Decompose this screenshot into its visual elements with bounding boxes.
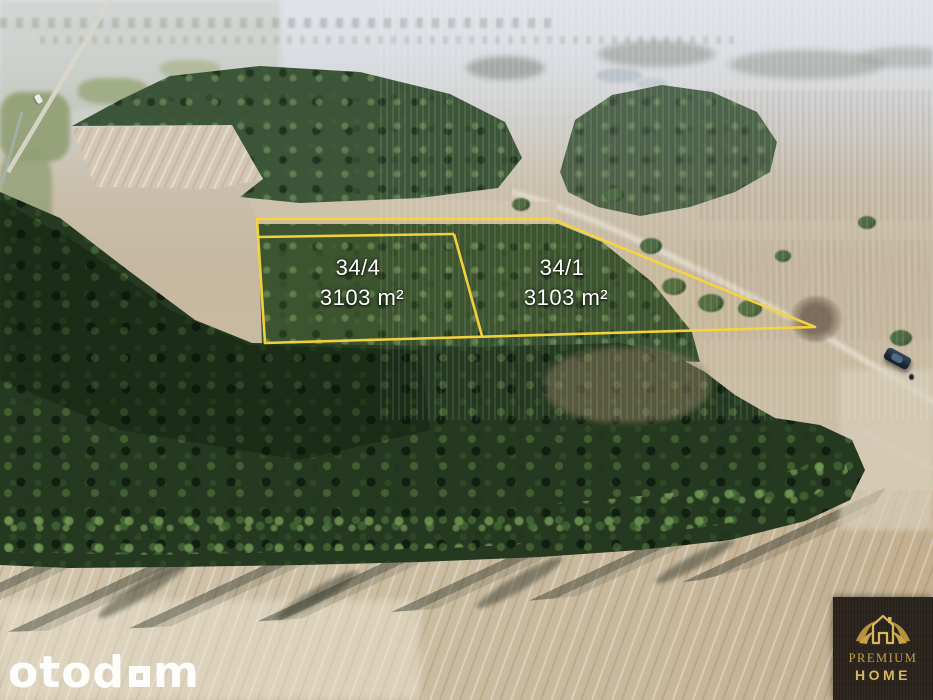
plot-outline-graphic: [0, 0, 933, 700]
plot-boundary-outer: [257, 219, 815, 343]
house-laurel-icon: [854, 613, 912, 647]
logo-home-text: HOME: [855, 666, 911, 684]
watermark-text-suffix: m: [153, 651, 200, 695]
premium-home-logo-card: PREMIUM HOME: [833, 597, 933, 700]
plot-1-area-label: 3103 m²: [320, 285, 404, 311]
logo-premium-text: PREMIUM: [849, 651, 918, 667]
plot-1-id-label: 34/4: [336, 255, 381, 281]
aerial-photo: 34/4 3103 m² 34/1 3103 m² otodm PREMIUM …: [0, 0, 933, 700]
otodom-square-glyph: [129, 666, 150, 687]
plot-2-id-label: 34/1: [540, 255, 585, 281]
plot-2-area-label: 3103 m²: [524, 285, 608, 311]
otodom-watermark: otodm: [8, 651, 200, 695]
watermark-text-prefix: otod: [8, 651, 125, 695]
